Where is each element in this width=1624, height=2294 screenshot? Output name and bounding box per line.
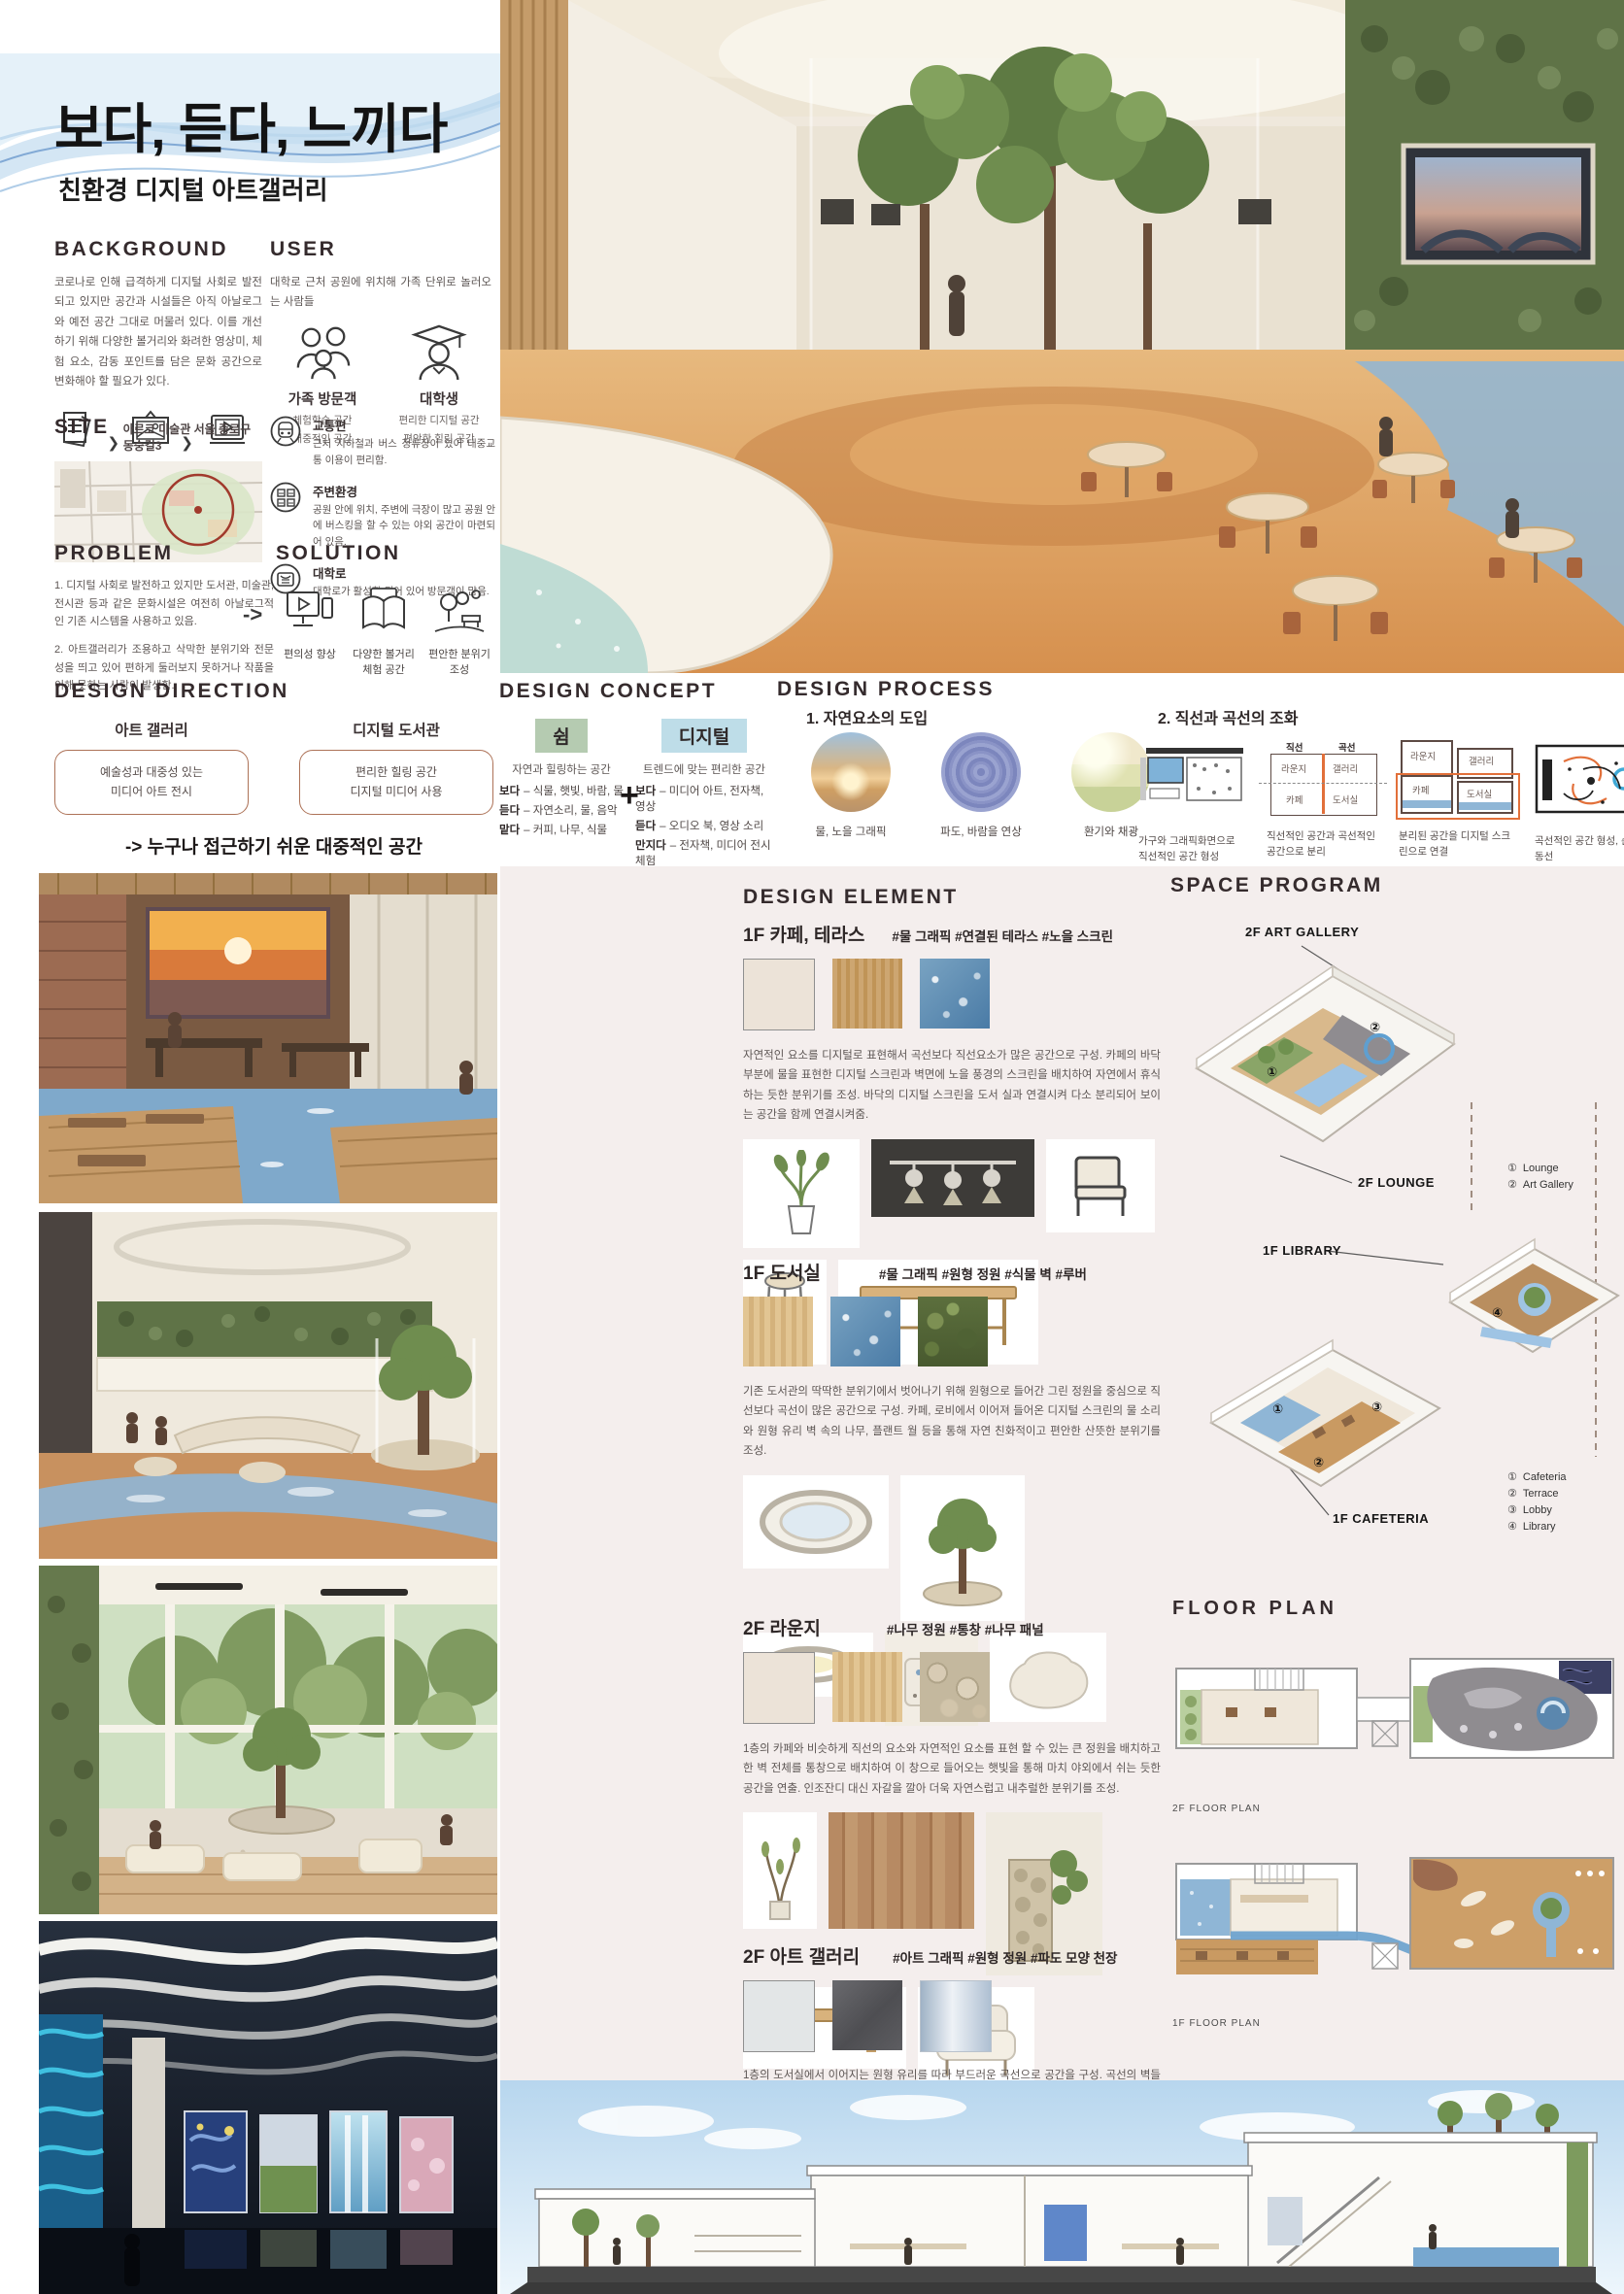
process-caption: 곡선적인 공간 형성, 순환 동선 xyxy=(1535,833,1624,865)
solution-label: 편안한 분위기 조성 xyxy=(423,646,495,677)
diagram-cell-library: 도서실 xyxy=(1333,793,1358,806)
concept-line-key: 맡다 xyxy=(499,825,520,836)
legend-label: Lounge xyxy=(1523,1163,1559,1174)
design-concept-heading: DESIGN CONCEPT xyxy=(499,680,773,703)
axon-num-library: ④ xyxy=(1492,1305,1503,1320)
element-title: 2F 라운지 xyxy=(743,1614,821,1640)
legend-num: ③ xyxy=(1507,1504,1517,1516)
legend-label: Art Gallery xyxy=(1523,1179,1573,1191)
frame-chair-image xyxy=(1046,1139,1155,1232)
direction-title-art-gallery: 아트 갤러리 xyxy=(54,719,249,740)
diagram-label-curve: 곡선 xyxy=(1338,740,1355,754)
wood-flooring-sample xyxy=(829,1812,974,1929)
legend-2f: ①Lounge ②Art Gallery xyxy=(1507,1162,1573,1195)
axonometric-1f-library: ④ xyxy=(1436,1210,1624,1385)
concept-line-key: 만지다 xyxy=(635,840,666,852)
axonometric-2f: ① ② xyxy=(1177,923,1459,1175)
context-title: 주변환경 xyxy=(313,482,495,500)
concept-line-value: – 커피, 나무, 식물 xyxy=(524,825,607,836)
process-step1-images: 물, 노을 그래픽 파도, 바람을 연상 환기와 채광 xyxy=(802,732,1160,839)
floor-plan-2f-label: 2F FLOOR PLAN xyxy=(1172,1804,1261,1814)
process-caption: 파도, 바람을 연상 xyxy=(932,824,1030,839)
section-design-process: DESIGN PROCESS xyxy=(777,678,995,701)
axon-num-terrace: ② xyxy=(1313,1455,1324,1469)
label-2f-art-gallery: 2F ART GALLERY xyxy=(1245,925,1359,939)
material-swatch-light-wood xyxy=(743,1297,813,1366)
diagram-cell-gallery: 갤러리 xyxy=(1333,761,1358,775)
design-element-heading: DESIGN ELEMENT xyxy=(743,886,959,909)
process-caption: 직선적인 공간과 곡선적인 공간으로 분리 xyxy=(1267,828,1383,860)
user-body: 대학로 근처 공원에 위치해 가족 단위로 놀러오는 사람들 xyxy=(270,273,491,313)
problem-to-solution-arrow: -> xyxy=(243,602,262,627)
park-buildings-icon xyxy=(270,482,301,513)
solution-heading: SOLUTION xyxy=(276,542,495,565)
element-title: 1F 카페, 테라스 xyxy=(743,921,864,947)
element-hashtags: #나무 정원 #통창 #나무 패널 xyxy=(887,1619,1044,1638)
floor-plan-heading: FLOOR PLAN xyxy=(1172,1598,1337,1620)
process-step2-title: 2. 직선과 곡선의 조화 xyxy=(1158,705,1298,728)
axonometric-1f-cafeteria: ① ② ③ xyxy=(1197,1297,1449,1525)
section-user: USER 대학로 근처 공원에 위치해 가족 단위로 놀러오는 사람들 가족 방… xyxy=(270,238,491,446)
render-1f-library xyxy=(39,1212,497,1559)
round-garden-tree-image xyxy=(900,1475,1025,1621)
diagram-curved-circulation xyxy=(1535,740,1624,818)
open-book-icon xyxy=(357,587,410,635)
material-swatch-cream xyxy=(743,1652,815,1724)
axon-num-lounge: ① xyxy=(1267,1064,1277,1079)
family-icon xyxy=(292,322,353,381)
diagram-label-straight: 직선 xyxy=(1286,740,1303,754)
digital-screen-connection-outline xyxy=(1396,773,1520,820)
context-item-surroundings: 주변환경 공원 안에 위치, 주변에 극장이 많고 공원 안에 버스킹을 할 수… xyxy=(270,482,495,551)
legend-1f: ①Cafeteria ②Terrace ③Lobby ④Library xyxy=(1507,1470,1567,1536)
process-caption: 물, 노을 그래픽 xyxy=(802,824,899,839)
material-swatch-wood xyxy=(832,959,902,1029)
section-design-direction: DESIGN DIRECTION 아트 갤러리 예술성과 대중성 있는 미디어 … xyxy=(54,680,493,859)
material-swatch-light-gray xyxy=(743,1980,815,2052)
render-2f-lounge xyxy=(39,1566,497,1914)
direction-box-art-gallery: 예술성과 대중성 있는 미디어 아트 전시 xyxy=(54,750,249,815)
legend-num: ② xyxy=(1507,1488,1517,1500)
solution-label: 편의성 향상 xyxy=(276,646,344,661)
label-1f-cafeteria: 1F CAFETERIA xyxy=(1333,1511,1429,1526)
label-1f-library: 1F LIBRARY xyxy=(1263,1243,1341,1258)
digital-devices-icon xyxy=(284,587,336,635)
material-swatch-gradient-glass xyxy=(920,1980,992,2052)
render-hero-interior xyxy=(500,0,1624,673)
concept-line-value: – 식물, 햇빛, 바람, 물 xyxy=(524,786,624,797)
wave-texture-photo xyxy=(941,732,1021,812)
legend-num: ② xyxy=(1507,1179,1517,1191)
poster-title: 보다, 듣다, 느끼다 xyxy=(54,85,447,163)
park-relax-icon xyxy=(433,587,486,635)
track-spotlights-image xyxy=(871,1139,1034,1217)
direction-box-digital-library: 편리한 힐링 공간 디지털 미디어 사용 xyxy=(299,750,493,815)
section-design-concept: DESIGN CONCEPT 쉼 자연과 힐링하는 공간 보다– 식물, 햇빛,… xyxy=(499,680,773,868)
context-desc: 근처 지하철과 버스 정류장이 있어 대중교통 이용이 편리함. xyxy=(313,436,495,469)
persona-name: 대학생 xyxy=(420,388,458,409)
legend-label: Lobby xyxy=(1523,1504,1552,1516)
element-hashtags: #물 그래픽 #원형 정원 #식물 벽 #루버 xyxy=(879,1264,1087,1283)
diagram-cell-lounge: 라운지 xyxy=(1281,761,1306,775)
graduate-icon xyxy=(409,322,469,381)
element-desc: 1층의 카페와 비슷하게 직선의 요소와 자연적인 요소를 표현 할 수 있는 … xyxy=(743,1739,1161,1799)
element-hashtags: #아트 그래픽 #원형 정원 #파도 모양 천장 xyxy=(893,1947,1117,1967)
element-desc: 기존 도서관의 딱딱한 분위기에서 벗어나기 위해 원형으로 들어간 그린 정원… xyxy=(743,1382,1161,1462)
space-program-heading: SPACE PROGRAM xyxy=(1170,874,1383,897)
concept-line-value: – 자연소리, 물, 음악 xyxy=(524,805,617,817)
persona-name: 가족 방문객 xyxy=(288,388,357,409)
concept-line-key: 듣다 xyxy=(499,805,520,817)
solution-label: 다양한 볼거리 체험 공간 xyxy=(348,646,420,677)
diagram-cell-lounge: 라운지 xyxy=(1410,749,1436,762)
poster-board: 보다, 듣다, 느끼다 친환경 디지털 아트갤러리 BACKGROUND 코로나… xyxy=(0,0,1624,2294)
branch-vase-image xyxy=(743,1812,817,1929)
direction-title-digital-library: 디지털 도서관 xyxy=(299,719,493,740)
sunset-water-photo xyxy=(811,732,891,812)
concept-line-key: 듣다 xyxy=(635,821,656,832)
render-2f-art-gallery xyxy=(39,1921,497,2294)
legend-num: ④ xyxy=(1507,1521,1517,1533)
plant-pot-image xyxy=(743,1139,860,1248)
background-body: 코로나로 인해 급격하게 디지털 사회로 발전되고 있지만 공간과 시설들은 아… xyxy=(54,273,262,392)
diagram-cell-cafe: 카페 xyxy=(1286,793,1303,806)
element-hashtags: #물 그래픽 #연결된 테라스 #노을 스크린 xyxy=(892,926,1113,945)
section-space-program: SPACE PROGRAM xyxy=(1170,874,1383,897)
concept-tag-digital: 디지털 xyxy=(661,719,747,753)
concept-plus-sign: + xyxy=(620,777,639,815)
site-heading: SITE xyxy=(54,416,110,439)
user-heading: USER xyxy=(270,238,491,261)
design-direction-heading: DESIGN DIRECTION xyxy=(54,680,493,703)
green-living-wall xyxy=(1345,0,1624,361)
poster-subtitle: 친환경 디지털 아트갤러리 xyxy=(58,171,328,207)
round-skylight-image xyxy=(743,1475,889,1569)
element-desc: 자연적인 요소를 디지털로 표현해서 곡선보다 직선요소가 많은 공간으로 구성… xyxy=(743,1046,1161,1126)
concept-tag-rest: 쉼 xyxy=(535,719,587,753)
diagram-straight-plan xyxy=(1138,740,1251,818)
background-heading: BACKGROUND xyxy=(54,238,262,261)
axon-num-art-gallery: ② xyxy=(1370,1020,1380,1034)
legend-num: ① xyxy=(1507,1471,1517,1483)
process-caption: 분리된 공간을 디지털 스크 린으로 연결 xyxy=(1399,828,1519,860)
material-swatch-dark-stone xyxy=(832,1980,902,2050)
legend-num: ① xyxy=(1507,1163,1517,1174)
material-swatch-pebble xyxy=(920,1652,990,1722)
section-design-element: DESIGN ELEMENT xyxy=(743,886,959,909)
process-caption: 가구와 그래픽화면으로 직선적인 공간 형성 xyxy=(1138,833,1251,865)
label-2f-lounge: 2F LOUNGE xyxy=(1358,1175,1435,1190)
material-swatch-water-graphic xyxy=(830,1297,900,1366)
section-floor-plan: FLOOR PLAN xyxy=(1172,1598,1337,1620)
context-title: 교통편 xyxy=(313,416,495,434)
process-step1-title: 1. 자연요소의 도입 xyxy=(806,705,928,728)
section-problem: PROBLEM 1. 디지털 사회로 발전하고 있지만 도서관, 미술관, 전시… xyxy=(54,542,274,695)
problem-item-1: 1. 디지털 사회로 발전하고 있지만 도서관, 미술관, 전시관 등과 같은 … xyxy=(54,577,274,631)
process-step2-diagrams: 가구와 그래픽화면으로 직선적인 공간 형성 직선 곡선 라운지 갤러리 카페 … xyxy=(1138,740,1624,865)
floor-plan-1f-image xyxy=(1172,1850,1617,1978)
axon-num-lobby: ③ xyxy=(1371,1400,1382,1414)
element-title: 1F 도서실 xyxy=(743,1259,821,1285)
concept-desc-rest: 자연과 힐링하는 공간 xyxy=(499,761,624,777)
floor-plan-1f-label: 1F FLOOR PLAN xyxy=(1172,2018,1261,2029)
concept-desc-digital: 트렌드에 맞는 편리한 공간 xyxy=(635,761,773,777)
material-swatch-light-wood xyxy=(832,1652,902,1722)
diagram-cell-gallery: 갤러리 xyxy=(1469,754,1494,767)
element-title: 2F 아트 갤러리 xyxy=(743,1942,860,1969)
concept-line-key: 보다 xyxy=(499,786,520,797)
design-process-heading: DESIGN PROCESS xyxy=(777,678,995,701)
indoor-trees xyxy=(811,47,1258,359)
floor-plan-2f-image xyxy=(1172,1651,1617,1766)
building-section-render xyxy=(500,2080,1624,2294)
problem-heading: PROBLEM xyxy=(54,542,274,565)
site-location: 아르코 미술관 서울 종로구 동숭길3 xyxy=(123,421,262,454)
material-swatch-plant-wall xyxy=(918,1297,988,1366)
legend-label: Terrace xyxy=(1523,1488,1559,1500)
material-swatch-water-graphic xyxy=(920,959,990,1029)
design-direction-conclusion: -> 누구나 접근하기 쉬운 대중적인 공간 xyxy=(54,832,493,859)
legend-label: Cafeteria xyxy=(1523,1471,1567,1483)
render-1f-cafe-terrace xyxy=(39,873,497,1203)
section-solution: SOLUTION 편의성 향상 다양한 볼거리 체험 공간 xyxy=(276,542,495,677)
material-swatch-cream xyxy=(743,959,815,1030)
legend-label: Library xyxy=(1523,1521,1556,1533)
train-icon xyxy=(270,416,301,447)
context-item-transit: 교통편 근처 지하철과 버스 정류장이 있어 대중교통 이용이 편리함. xyxy=(270,416,495,469)
axon-num-cafeteria: ① xyxy=(1272,1401,1283,1416)
concept-line-value: – 오디오 북, 영상 소리 xyxy=(660,821,763,832)
